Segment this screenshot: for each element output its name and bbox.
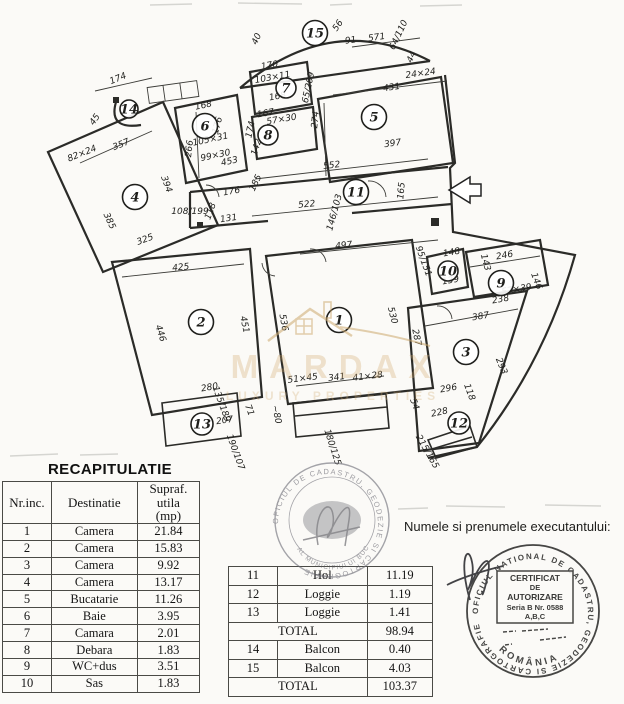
dimension-label: 571	[368, 32, 386, 44]
table-row: 4Camera13.17	[3, 574, 200, 591]
dimension-label: 71	[242, 403, 255, 417]
subtotal-row: TOTAL98.94	[229, 622, 433, 641]
dimension-label: 64/110	[388, 18, 411, 51]
room-number-circle	[123, 185, 148, 210]
dimension-label: 135/189	[210, 385, 232, 424]
window-symbol	[147, 81, 199, 104]
table-row: 6Baie3.95	[3, 608, 200, 625]
signature-over-stamp1	[303, 507, 360, 546]
table-row: 15Balcon4.03	[229, 659, 433, 678]
col-header-nr: Nr.inc.	[3, 482, 52, 524]
room-number-circle	[327, 308, 352, 333]
dimension-label: 168	[268, 91, 287, 104]
room-number-circle	[191, 413, 213, 435]
dimension-label: 108/199	[171, 207, 209, 217]
room-number: 14	[120, 103, 138, 118]
dimension-label: 341	[328, 372, 346, 384]
table-row: 12Loggie1.19	[229, 585, 433, 604]
executor-label: Numele si prenumele executantului:	[404, 519, 620, 534]
table-row: 11Hol11.19	[229, 567, 433, 586]
watermark: MARDAX LUXURY PROPERTIES	[226, 302, 442, 403]
table-row: 8Debara1.83	[3, 642, 200, 659]
dimension-label: 91	[344, 35, 357, 46]
dimension-label: 24×24	[405, 67, 437, 81]
stamp1-ring-text: OFICIUL DE CADASTRU, GEODEZIE SI CARTOGR…	[271, 467, 385, 581]
dimension-label: 99×30	[200, 148, 232, 164]
room-6-walls	[175, 95, 247, 183]
dimension-label: 280	[200, 382, 219, 395]
dimension-label: 451	[237, 315, 250, 334]
room-number-circle	[489, 271, 514, 296]
room-number: 1	[334, 314, 343, 329]
watermark-roof-icon	[268, 302, 430, 346]
room-number: 7	[281, 82, 290, 97]
dimension-label: 146/103	[325, 193, 344, 232]
dimension-label: 103×11	[254, 70, 291, 86]
dimension-label: 425	[172, 262, 190, 274]
room-number: 15	[306, 27, 324, 42]
dimension-label: 57×39	[501, 282, 533, 297]
table-header-row: Nr.inc. Destinatie Supraf. utila (mp)	[3, 482, 200, 524]
dimension-label: 296	[439, 383, 458, 396]
dimension-label: 497	[335, 240, 353, 252]
room-numbers: 123456789101112131415	[120, 21, 514, 436]
dimension-label: 176	[222, 186, 241, 199]
recap-title: RECAPITULATIE	[30, 461, 190, 478]
total-row: TOTAL103.37	[229, 678, 433, 697]
dimension-label: 139	[441, 275, 460, 288]
dimension-label: 176	[211, 116, 225, 135]
room-number-circle	[258, 125, 278, 145]
dimension-label: 142	[250, 137, 265, 157]
dimension-label: 44	[405, 50, 419, 65]
cert-line5: A,B,C	[525, 612, 546, 621]
stamp2-country: ROMÂNIA	[497, 644, 561, 669]
round-stamp-oncgc: OFICIUL NATIONAL DE CADASTRU, GEODEZIE S…	[447, 545, 599, 677]
plan-loggias	[162, 393, 477, 458]
recap-table-left: Nr.inc. Destinatie Supraf. utila (mp) 1C…	[2, 481, 200, 693]
dimension-label: 174	[244, 120, 257, 139]
room-number: 11	[347, 186, 365, 201]
watermark-brand: MARDAX	[231, 348, 442, 385]
room-number: 12	[450, 417, 468, 432]
room-number-circle	[344, 180, 369, 205]
room-number-circle	[276, 78, 296, 98]
room-number: 8	[263, 129, 272, 144]
dimension-label: 105×31	[192, 131, 229, 148]
cert-line3: AUTORIZARE	[507, 592, 563, 602]
hall-walls	[190, 167, 452, 228]
dimension-label: 174	[108, 71, 128, 87]
dimension-label: 148	[442, 247, 461, 260]
cert-line2: DE	[530, 583, 540, 592]
svg-text:OFICIUL NATIONAL DE CADASTRU,: OFICIUL NATIONAL DE CADASTRU, GEODEZIE S…	[471, 552, 595, 676]
table-row: 9WC+dus3.51	[3, 659, 200, 676]
room-number: 4	[130, 191, 139, 206]
table-row: 13Loggie1.41	[229, 604, 433, 623]
cert-line1: CERTIFICAT	[510, 573, 561, 583]
dimension-label: ~80	[269, 404, 283, 425]
dimension-label: 185	[248, 173, 264, 193]
dimension-label: 552	[323, 160, 342, 172]
dimension-label: 56	[331, 18, 346, 33]
dimension-lines	[80, 38, 540, 386]
col-header-dest: Destinatie	[51, 482, 137, 524]
dimension-label: 40	[250, 32, 264, 47]
stamp2-ring-text: OFICIUL NATIONAL DE CADASTRU, GEODEZIE S…	[471, 552, 595, 676]
dimension-label: 522	[298, 199, 316, 211]
door-arcs	[206, 181, 452, 319]
dimension-label: 453	[220, 155, 239, 168]
entrance-arrow-icon	[449, 177, 481, 203]
dimension-label: 146	[528, 272, 543, 292]
room-5-walls	[318, 77, 453, 182]
dimension-label: 246	[495, 250, 514, 263]
dimension-label: 287	[409, 328, 422, 347]
room-number-circle	[189, 310, 214, 335]
dimension-label: 394	[158, 175, 173, 195]
col-header-area: Supraf. utila (mp)	[137, 482, 199, 524]
room-4-walls	[48, 102, 218, 272]
cert-line4: Seria B Nr. 0588	[507, 603, 564, 612]
executor-signature	[447, 554, 503, 600]
dimension-label: 57×30	[266, 112, 298, 127]
dimension-labels: 571569164/110404443124×2439727455265/209…	[66, 18, 543, 472]
room-number-circle	[120, 100, 138, 118]
dimension-label: 274	[310, 110, 322, 128]
stamp1-emblem	[303, 501, 361, 539]
table-row: 7Camara2.01	[3, 625, 200, 642]
table-row: 10Sas1.83	[3, 675, 200, 692]
balcony-14-walls	[114, 102, 141, 126]
dimension-label: 54	[407, 397, 420, 411]
svg-text:OFICIUL DE CADASTRU, GEODEZIE: OFICIUL DE CADASTRU, GEODEZIE SI CARTOGR…	[271, 467, 385, 581]
dimension-label: 131	[220, 213, 238, 225]
dimension-label: 536	[277, 313, 290, 332]
cert-handwriting	[503, 629, 566, 645]
dimension-label: 293	[493, 356, 509, 376]
dimension-label: 431	[383, 82, 401, 94]
room-number-circle	[303, 21, 328, 46]
scanned-floor-plan-page: RECAPITULATIE Nr.inc. Destinatie Supraf.…	[0, 0, 624, 704]
room-number: 10	[439, 265, 457, 280]
dimension-label: 95/151	[413, 245, 433, 278]
dimension-label: 165	[396, 182, 407, 200]
room-number: 6	[200, 120, 209, 135]
dimension-label: 118	[203, 201, 218, 221]
dimension-label: 143	[478, 253, 492, 272]
dimension-label: 530	[385, 306, 399, 325]
wall-nodes	[113, 97, 439, 228]
dimension-label: 118	[461, 383, 476, 403]
room-9-walls	[466, 240, 548, 297]
dimension-label: 65/209	[301, 71, 317, 104]
room-number: 13	[193, 418, 211, 433]
table-row: 14Balcon0.40	[229, 641, 433, 660]
dimension-label: 167	[256, 108, 275, 121]
room-number-circle	[362, 105, 387, 130]
dimension-label: 207	[216, 415, 235, 427]
loggia-13-walls	[162, 393, 241, 446]
dimension-label: 190/107	[224, 433, 246, 472]
room-10-walls	[427, 249, 468, 294]
loggia-12-walls	[428, 426, 477, 458]
dimension-label: 170	[260, 60, 279, 73]
dimension-label: 45	[88, 112, 103, 127]
outer-wall-right	[428, 75, 575, 458]
dimension-label: 238	[491, 294, 510, 307]
scan-artifacts	[10, 3, 601, 509]
dimension-label: 180/125	[321, 428, 342, 467]
dimension-label: 228	[430, 406, 449, 419]
plan-walls	[48, 41, 575, 458]
balcony-15-arc	[240, 41, 430, 88]
room-7-walls	[250, 62, 312, 114]
cert-box	[497, 571, 573, 623]
room-3-walls	[408, 291, 527, 451]
dimension-label: 168	[194, 99, 213, 112]
dimension-label: 266	[184, 139, 196, 158]
dimension-label: 51×45	[287, 372, 319, 386]
room-number: 5	[369, 111, 378, 126]
table-row: 5Bucatarie11.26	[3, 591, 200, 608]
dimension-label: 325	[136, 232, 156, 247]
table-row: 1Camera21.84	[3, 523, 200, 540]
recap-table-right: 11Hol11.19 12Loggie1.19 13Loggie1.41 TOT…	[228, 566, 433, 697]
table-row: 2Camera15.83	[3, 540, 200, 557]
dimension-label: 385	[101, 211, 117, 231]
watermark-tagline: LUXURY PROPERTIES	[226, 389, 440, 403]
room-1-walls	[266, 240, 433, 404]
svg-text:ROMÂNIA: ROMÂNIA	[497, 644, 561, 669]
dimension-label: 357	[111, 137, 131, 153]
room-number-circle	[448, 412, 470, 434]
room-8-walls	[252, 107, 317, 159]
room-number-circle	[438, 261, 458, 281]
dimension-label: 397	[384, 138, 403, 150]
room-number-circle	[193, 114, 218, 139]
dimension-label: 215/165	[413, 433, 440, 471]
room-2-walls	[112, 249, 262, 415]
dimension-label: 387	[471, 311, 490, 324]
dimension-label: 82×24	[66, 144, 98, 165]
room-number: 3	[461, 346, 470, 361]
dimension-label: 41×28	[352, 370, 384, 384]
dimension-label: 446	[152, 324, 167, 344]
room-number-circle	[454, 340, 479, 365]
balcony-under-room1	[293, 394, 389, 437]
room-number: 9	[496, 277, 505, 292]
room-number: 2	[195, 316, 205, 331]
table-row: 3Camera9.92	[3, 557, 200, 574]
